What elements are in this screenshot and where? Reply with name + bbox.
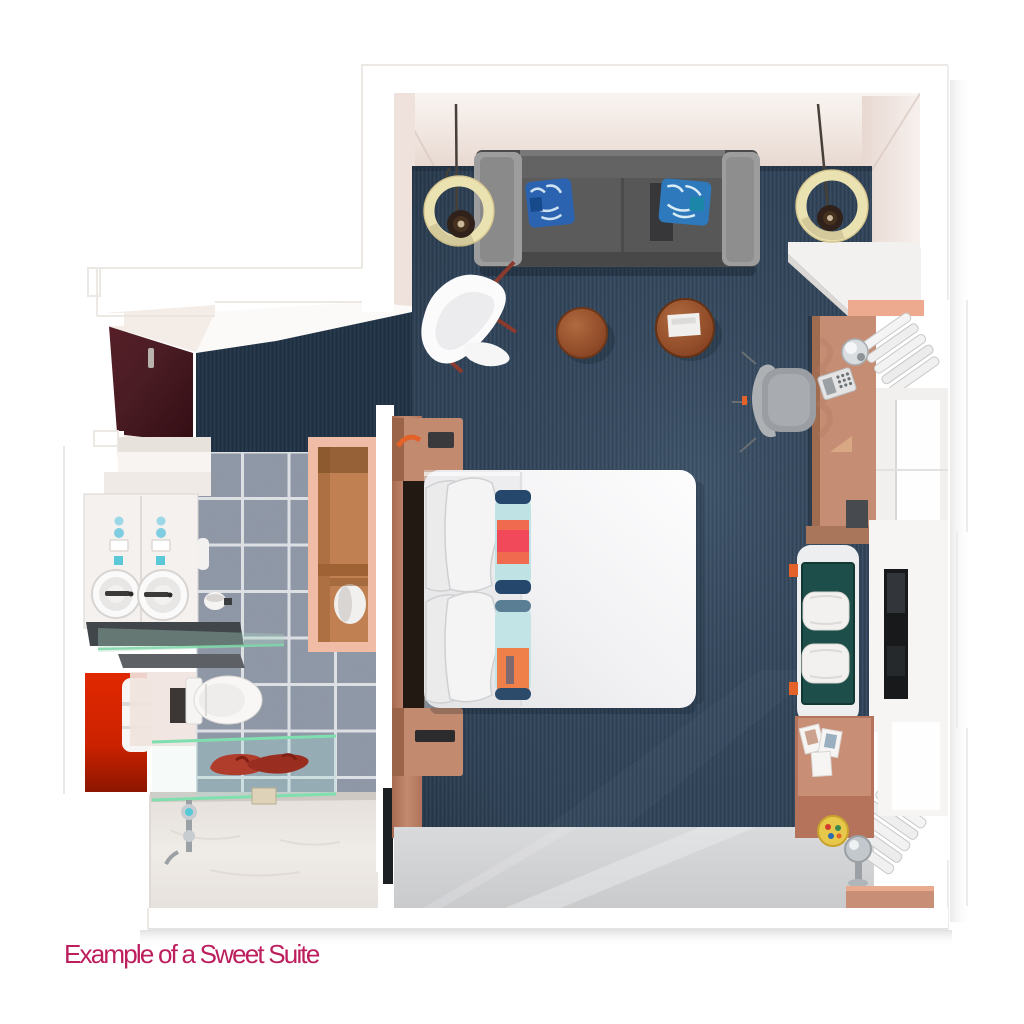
svg-text:Example of a Sweet Suite: Example of a Sweet Suite (64, 939, 320, 969)
